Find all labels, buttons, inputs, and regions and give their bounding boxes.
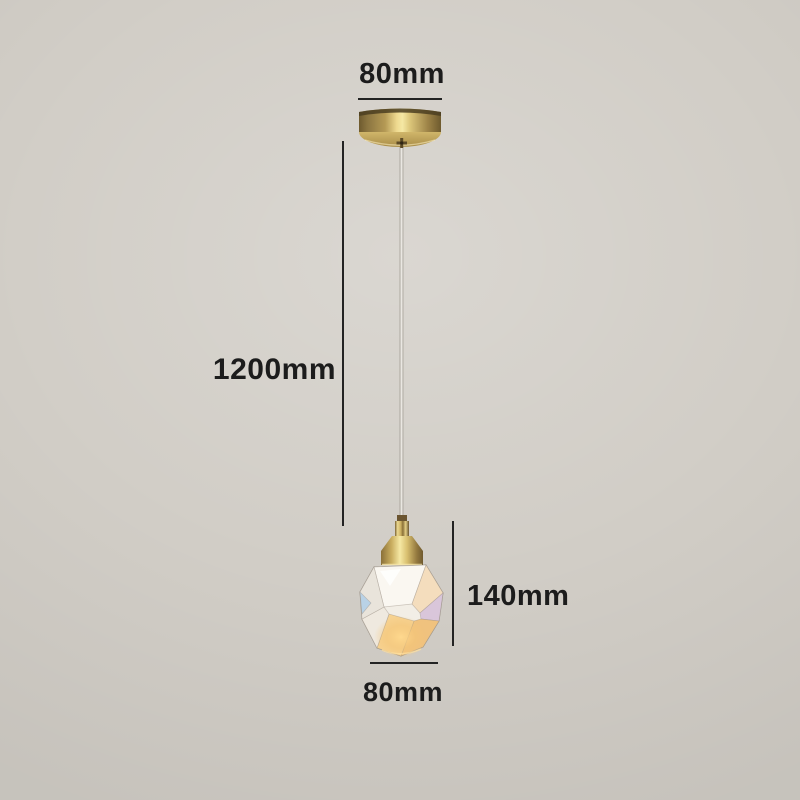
- ceiling-canopy: [359, 109, 441, 149]
- crystal-glow: [374, 616, 428, 658]
- suspension-cable: [399, 147, 403, 522]
- pendant-lamp-illustration: [0, 0, 800, 800]
- crystal-shade: [360, 565, 443, 658]
- lamp-socket: [381, 515, 423, 565]
- product-image: 80mm 1200mm 140mm 80mm: [0, 0, 800, 800]
